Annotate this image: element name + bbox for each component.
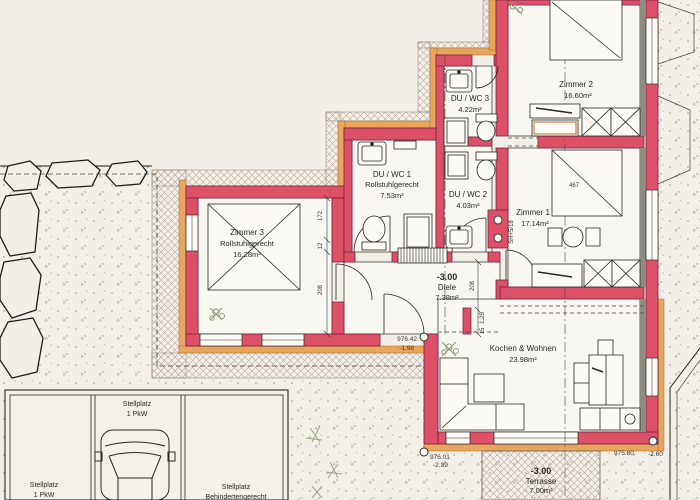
wall-insulation <box>640 0 646 432</box>
bed-icon <box>550 0 622 60</box>
room-label: Zimmer 2 <box>559 80 593 89</box>
shower-icon <box>444 118 468 146</box>
room-note: Rollstuhlgerecht <box>220 239 275 248</box>
sink-icon <box>446 226 472 248</box>
stall-label: Behindertengerecht <box>205 494 266 500</box>
radiator-icon <box>398 248 447 263</box>
room-label: Diele <box>438 283 457 292</box>
wardrobe-icon <box>582 108 640 136</box>
dimension-label: 12 <box>318 242 324 249</box>
elevation-depth: -2.39 <box>433 462 448 469</box>
floor-plan-page: Stellplatz 1 PkW Stellplatz 1 PkW Stellp… <box>0 0 700 500</box>
room-label: Zimmer 3 <box>230 228 264 237</box>
shower-icon <box>445 152 468 179</box>
room-area: 4.03m² <box>456 201 480 210</box>
dimension-label: 208 <box>318 284 324 295</box>
shelf-icon <box>530 104 580 118</box>
room-note: Rollstuhlgerecht <box>365 180 420 189</box>
room-area: 17.14m² <box>521 219 549 228</box>
room-label: DU / WC 1 <box>373 170 412 179</box>
dimension-label: 172 <box>318 210 324 221</box>
room-area: 7.38m² <box>435 293 459 302</box>
room-area: 16.60m² <box>564 91 592 100</box>
coffee-table-icon <box>474 374 504 402</box>
room-label: DU / WC 2 <box>449 190 488 199</box>
sink-icon <box>446 70 472 92</box>
toilet-icon <box>476 152 497 180</box>
shower-icon <box>404 214 432 250</box>
table-icon <box>548 227 600 247</box>
room-area: 4.22m² <box>458 105 482 114</box>
toilet-icon <box>362 216 386 250</box>
sill-height-label: SH+5/18 <box>509 220 515 244</box>
room-level: -3.00 <box>437 272 458 282</box>
bed-icon <box>552 150 622 216</box>
dimension-label: 1.25 <box>480 312 486 324</box>
elevation-depth: -2.60 <box>648 451 663 458</box>
elevation-value: 975.80 <box>614 450 634 457</box>
elevation-depth: -1.98 <box>399 345 414 352</box>
shelf-icon <box>394 141 416 149</box>
parking-area: Stellplatz 1 PkW Stellplatz 1 PkW Stellp… <box>5 390 288 500</box>
room-area: 7.53m² <box>380 191 404 200</box>
stall-label: Stellplatz <box>30 482 59 489</box>
room-area: 16.28m² <box>233 250 261 259</box>
room-label: Terrasse <box>526 477 557 486</box>
sideboard-icon <box>532 264 582 287</box>
stall-label: Stellplatz <box>222 484 251 491</box>
sink-icon <box>358 142 386 165</box>
elevation-value: 976.01 <box>430 454 450 461</box>
room-area: 23.98m² <box>509 355 537 364</box>
dimension-label: 15 <box>480 327 486 334</box>
floor-plan-drawing: Stellplatz 1 PkW Stellplatz 1 PkW Stellp… <box>0 0 700 500</box>
toilet-icon <box>476 114 497 141</box>
stall-label: Stellplatz <box>123 401 152 408</box>
stall-label: 1 PkW <box>127 411 148 418</box>
dimension-label: 467 <box>569 183 580 189</box>
room-level: -3.00 <box>531 466 552 476</box>
dimension-label: 208 <box>470 280 476 291</box>
room-label: DU / WC 3 <box>451 94 490 103</box>
elevation-value: 976.42 <box>397 336 417 343</box>
desk-icon <box>532 120 578 136</box>
room-label: Kochen & Wohnen <box>490 344 557 353</box>
stall-label: 1 PkW <box>34 492 55 499</box>
wardrobe-icon <box>584 260 640 287</box>
room-label: Zimmer 1 <box>516 208 550 217</box>
room-area: 7.00m² <box>529 486 553 495</box>
